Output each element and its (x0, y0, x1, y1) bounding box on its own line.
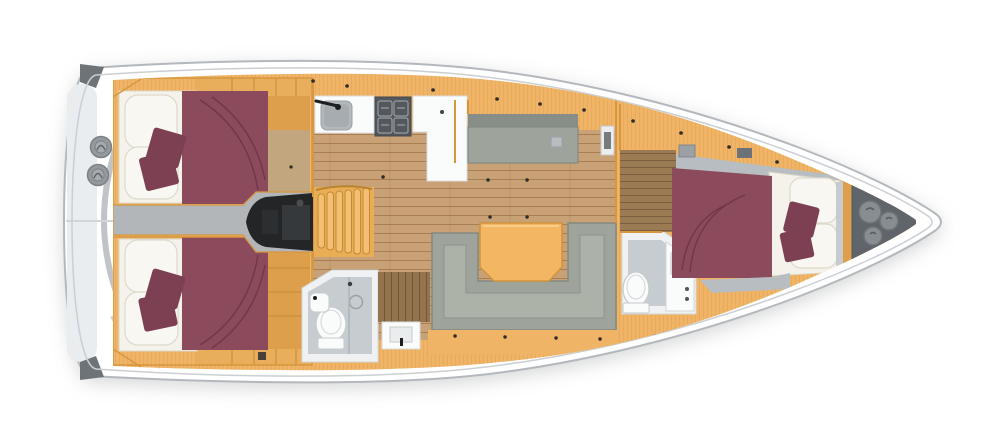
toilet-tank (318, 338, 344, 349)
fridge-vent (604, 132, 611, 149)
locker-front (268, 96, 310, 130)
stair-step (354, 189, 361, 254)
vanity-faucet (400, 338, 403, 346)
cabin-floor-strip (268, 130, 310, 202)
faucet-head (335, 104, 341, 110)
shelf-handle (258, 352, 266, 360)
cabinet-knob (685, 287, 689, 291)
accent-cushion (779, 227, 815, 263)
deck-hatch-icon (880, 212, 898, 230)
stair-step (318, 194, 325, 248)
aft-cabin-port (113, 78, 312, 207)
aft-head (302, 270, 430, 362)
deck-hatch-icon (859, 201, 881, 223)
engine-detail (282, 205, 310, 240)
aft-cabin-starboard (113, 237, 312, 367)
winch-icon (88, 165, 109, 186)
engine-pulley (297, 200, 304, 207)
headboard-trim (836, 182, 843, 266)
bedspread (182, 237, 268, 350)
deck-hatch-icon (864, 227, 882, 245)
locker-bulkhead (843, 178, 852, 266)
floor-plan-canvas (0, 0, 1000, 444)
stair-step (336, 191, 343, 252)
shower-hinge (348, 282, 352, 286)
yacht-floor-plan (0, 0, 1000, 444)
passage-floor (620, 150, 676, 232)
deck-hatch-small (737, 148, 752, 158)
companionway (314, 186, 374, 257)
corner-faucet (313, 296, 317, 300)
deck-vent (551, 137, 562, 147)
bedspread (672, 168, 772, 278)
deck-hatch-small (679, 145, 695, 157)
stair-step (327, 192, 334, 250)
winch-icon (91, 137, 112, 158)
interior (60, 55, 930, 385)
corner-sink (310, 293, 329, 312)
counter-handle-dot (440, 110, 444, 114)
cabinet-knob (685, 297, 689, 301)
stair-step (345, 190, 352, 253)
changing-area-floor (378, 272, 430, 322)
stair-step (363, 188, 370, 254)
engine-detail (262, 210, 278, 234)
salon-table (480, 223, 562, 281)
accent-cushion (138, 292, 178, 332)
toilet-tank (623, 303, 649, 313)
settee-back (468, 114, 578, 128)
